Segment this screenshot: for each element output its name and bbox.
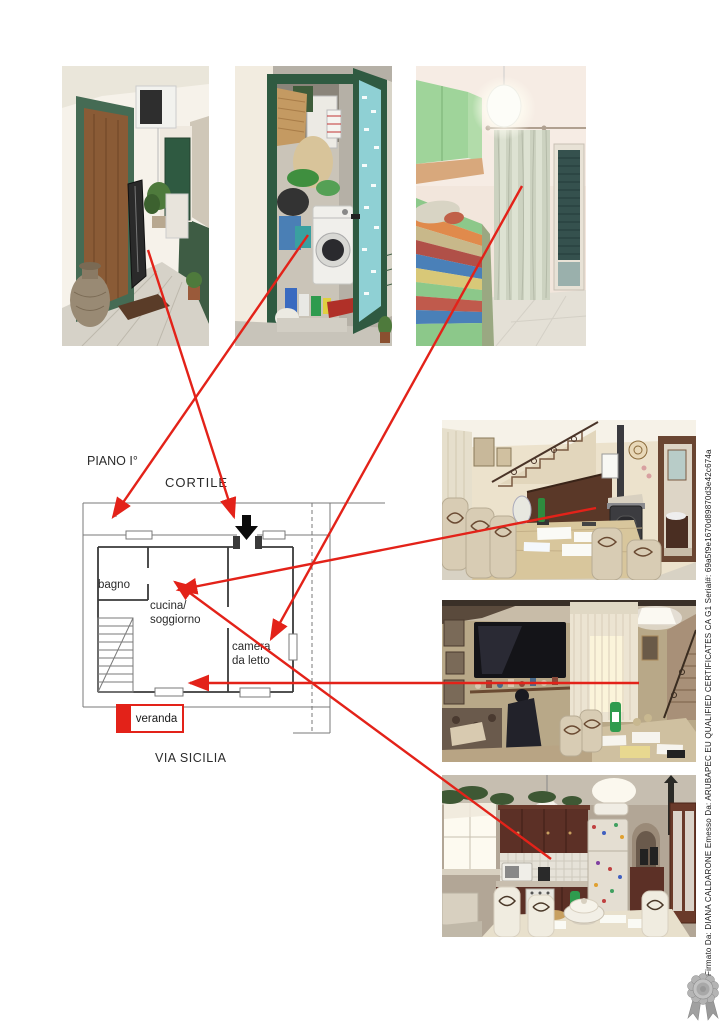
floor-plan-drawing bbox=[0, 0, 724, 1024]
certificate-seal-icon bbox=[684, 972, 722, 1022]
room-label-veranda: veranda bbox=[131, 706, 182, 731]
digital-signature-text: Firmato Da: DIANA CALDARONE Emesso Da: A… bbox=[704, 396, 715, 976]
document-page: PIANO I° CORTILE bagno cucina/soggiorno … bbox=[0, 0, 724, 1024]
street-label: VIA SICILIA bbox=[155, 751, 227, 767]
room-label-bathroom: bagno bbox=[98, 578, 130, 592]
floor-label: PIANO I° bbox=[87, 454, 138, 470]
room-label-bedroom: camerada letto bbox=[232, 640, 270, 669]
veranda-red-fill bbox=[118, 706, 131, 731]
window-symbol bbox=[155, 688, 183, 696]
staircase-symbol bbox=[98, 618, 133, 692]
veranda-box: veranda bbox=[116, 704, 184, 733]
room-label-kitchen-living: cucina/soggiorno bbox=[150, 599, 201, 628]
courtyard-label: CORTILE bbox=[165, 475, 228, 491]
